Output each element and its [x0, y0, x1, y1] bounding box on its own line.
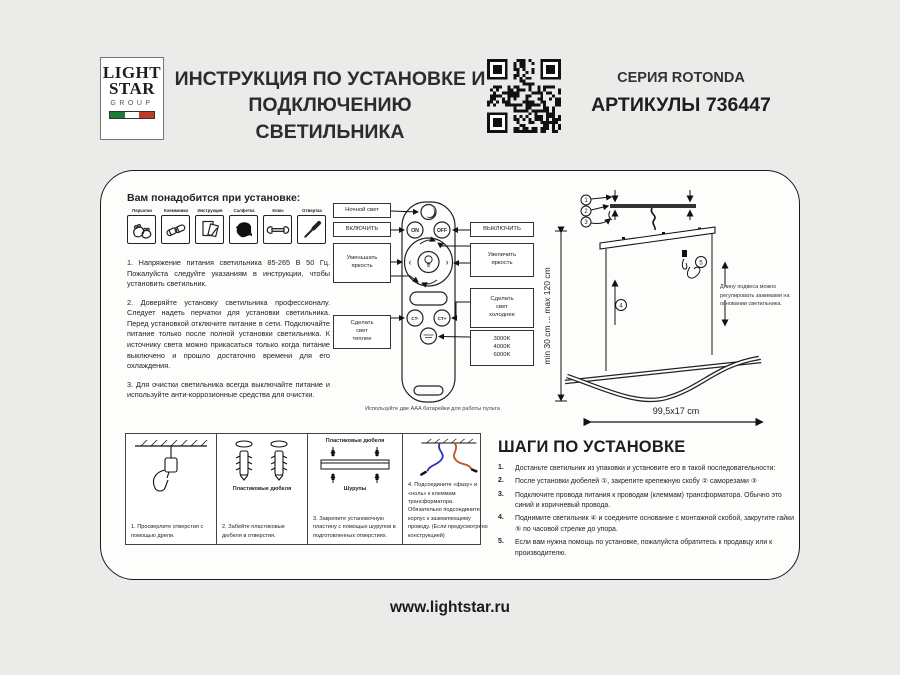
bulb-icon [425, 256, 432, 266]
wire-clamp [682, 250, 687, 257]
tool-terminals: Клеммники [161, 207, 191, 244]
tool-napkin: Салфетка [229, 207, 259, 244]
lightstar-logo: LIGHT STAR GROUP [100, 57, 164, 140]
note-2: 2. Доверяйте установку светильника профе… [127, 298, 330, 372]
needs-heading: Вам понадобится при установке: [127, 192, 337, 204]
install-step: 1. Достаньте светильник из упаковки и ус… [498, 464, 796, 474]
callout-off: ВЫКЛЮЧИТЬ [470, 222, 534, 237]
callout-dim: Уменьшать яркость [333, 243, 391, 283]
page-title: ИНСТРУКЦИЯ ПО УСТАНОВКЕ И ПОДКЛЮЧЕНИЮ СВ… [172, 66, 488, 145]
logo-line3: GROUP [101, 100, 163, 107]
series-name: СЕРИЯ ROTONDA [562, 70, 800, 86]
scene-button [410, 292, 447, 305]
ct-plus-label: CT+ [438, 316, 447, 321]
mount-steps-strip: 1. Просверлите отверстия с помощью дрели… [125, 433, 481, 545]
install-list: 1. Достаньте светильник из упаковки и ус… [498, 464, 796, 559]
callout-on: ВКЛЮЧИТЬ [333, 222, 391, 237]
drill-icon [131, 438, 211, 496]
tool-manual: Инструкция [195, 207, 225, 244]
mount-step-2: Пластиковые дюбеля 2. Забейте пластиковы… [217, 434, 308, 544]
mounting-plate-icon [313, 444, 397, 486]
ir-window [414, 386, 443, 395]
note-1: 1. Напряжение питания светильника 85-265… [127, 258, 330, 290]
dim-arrow-icon: ‹ [409, 257, 412, 267]
logo-line2: STAR [101, 81, 163, 97]
screwdriver-icon [297, 215, 326, 244]
article-number: АРТИКУЛЫ 736447 [562, 94, 800, 117]
callout-kelvin: 3000K 4000K 6000K [470, 330, 534, 366]
safety-notes: 1. Напряжение питания светильника 85-265… [127, 258, 330, 409]
install-steps: ШАГИ ПО УСТАНОВКЕ 1. Достаньте светильни… [498, 438, 796, 562]
install-step: 4. Поднимите светильник ④ и соедините ос… [498, 514, 796, 535]
dpad-center-button [418, 252, 439, 273]
website-url: www.lightstar.ru [0, 599, 900, 617]
manual-sheets-icon [195, 215, 224, 244]
fixture-base-bar [600, 227, 715, 249]
width-dim-label: 99,5x17 cm [653, 406, 700, 416]
wrench-icon [263, 215, 292, 244]
italian-flag-icon [109, 111, 155, 119]
callout-cooler: Сделать свет холоднее [470, 288, 534, 328]
ct-minus-label: CT- [411, 316, 419, 321]
remote-body [402, 202, 455, 402]
note-3: 3. Для очистки светильника всегда выключ… [127, 380, 330, 401]
install-step: 3. Подключите провода питания к проводам… [498, 491, 796, 512]
adjust-note: Длину подвеса можно регулировать зажимам… [720, 283, 798, 309]
wire-terminals-icon [161, 215, 190, 244]
gloves-icon [127, 215, 156, 244]
lamp-body [565, 358, 761, 400]
mount-step-4: 4. Подсоедините «фазу» и «ноль» к клемма… [403, 434, 493, 544]
tool-wrench: Ключ [263, 207, 293, 244]
install-heading: ШАГИ ПО УСТАНОВКЕ [498, 438, 796, 457]
callout-night: Ночной свет [333, 203, 391, 218]
callout-markers: 1 2 3 [581, 195, 611, 227]
remote-battery-note: Используйте две AAA батарейки для работы… [335, 406, 530, 412]
height-dimension [555, 231, 567, 401]
ceiling-bracket [610, 204, 696, 208]
install-step: 5. Если вам нужна помощь по установке, п… [498, 538, 796, 559]
tools-row: Перчатки Клеммники Инструкция [127, 207, 327, 244]
wires-icon [408, 438, 488, 481]
qr-code [487, 59, 561, 133]
dowels-icon [222, 438, 302, 486]
callout-brighten: Увеличить яркость [470, 243, 534, 277]
napkin-icon [229, 215, 258, 244]
kelvin-cycle-button [421, 328, 437, 344]
mount-step-3: Пластиковые дюбеля Шурупы 3. Закрепите у… [308, 434, 403, 544]
mount-step-1: 1. Просверлите отверстия с помощью дрели… [126, 434, 217, 544]
on-label: ON [411, 228, 419, 234]
increase-icon [420, 240, 435, 244]
decrease-icon [422, 280, 437, 284]
callout-warmer: Сделать свет теплее [333, 315, 391, 349]
tool-screwdriver: Отвертка [297, 207, 327, 244]
install-step: 2. После установки дюбелей ①, закрепите … [498, 477, 796, 487]
tool-gloves: Перчатки [127, 207, 157, 244]
height-range-label: min 30 cm ... max 120 cm [542, 267, 552, 364]
off-label: OFF [437, 228, 447, 234]
series-block: СЕРИЯ ROTONDA АРТИКУЛЫ 736447 [562, 70, 800, 117]
suspension-cable [651, 208, 655, 230]
brighten-arrow-icon: › [446, 257, 449, 267]
